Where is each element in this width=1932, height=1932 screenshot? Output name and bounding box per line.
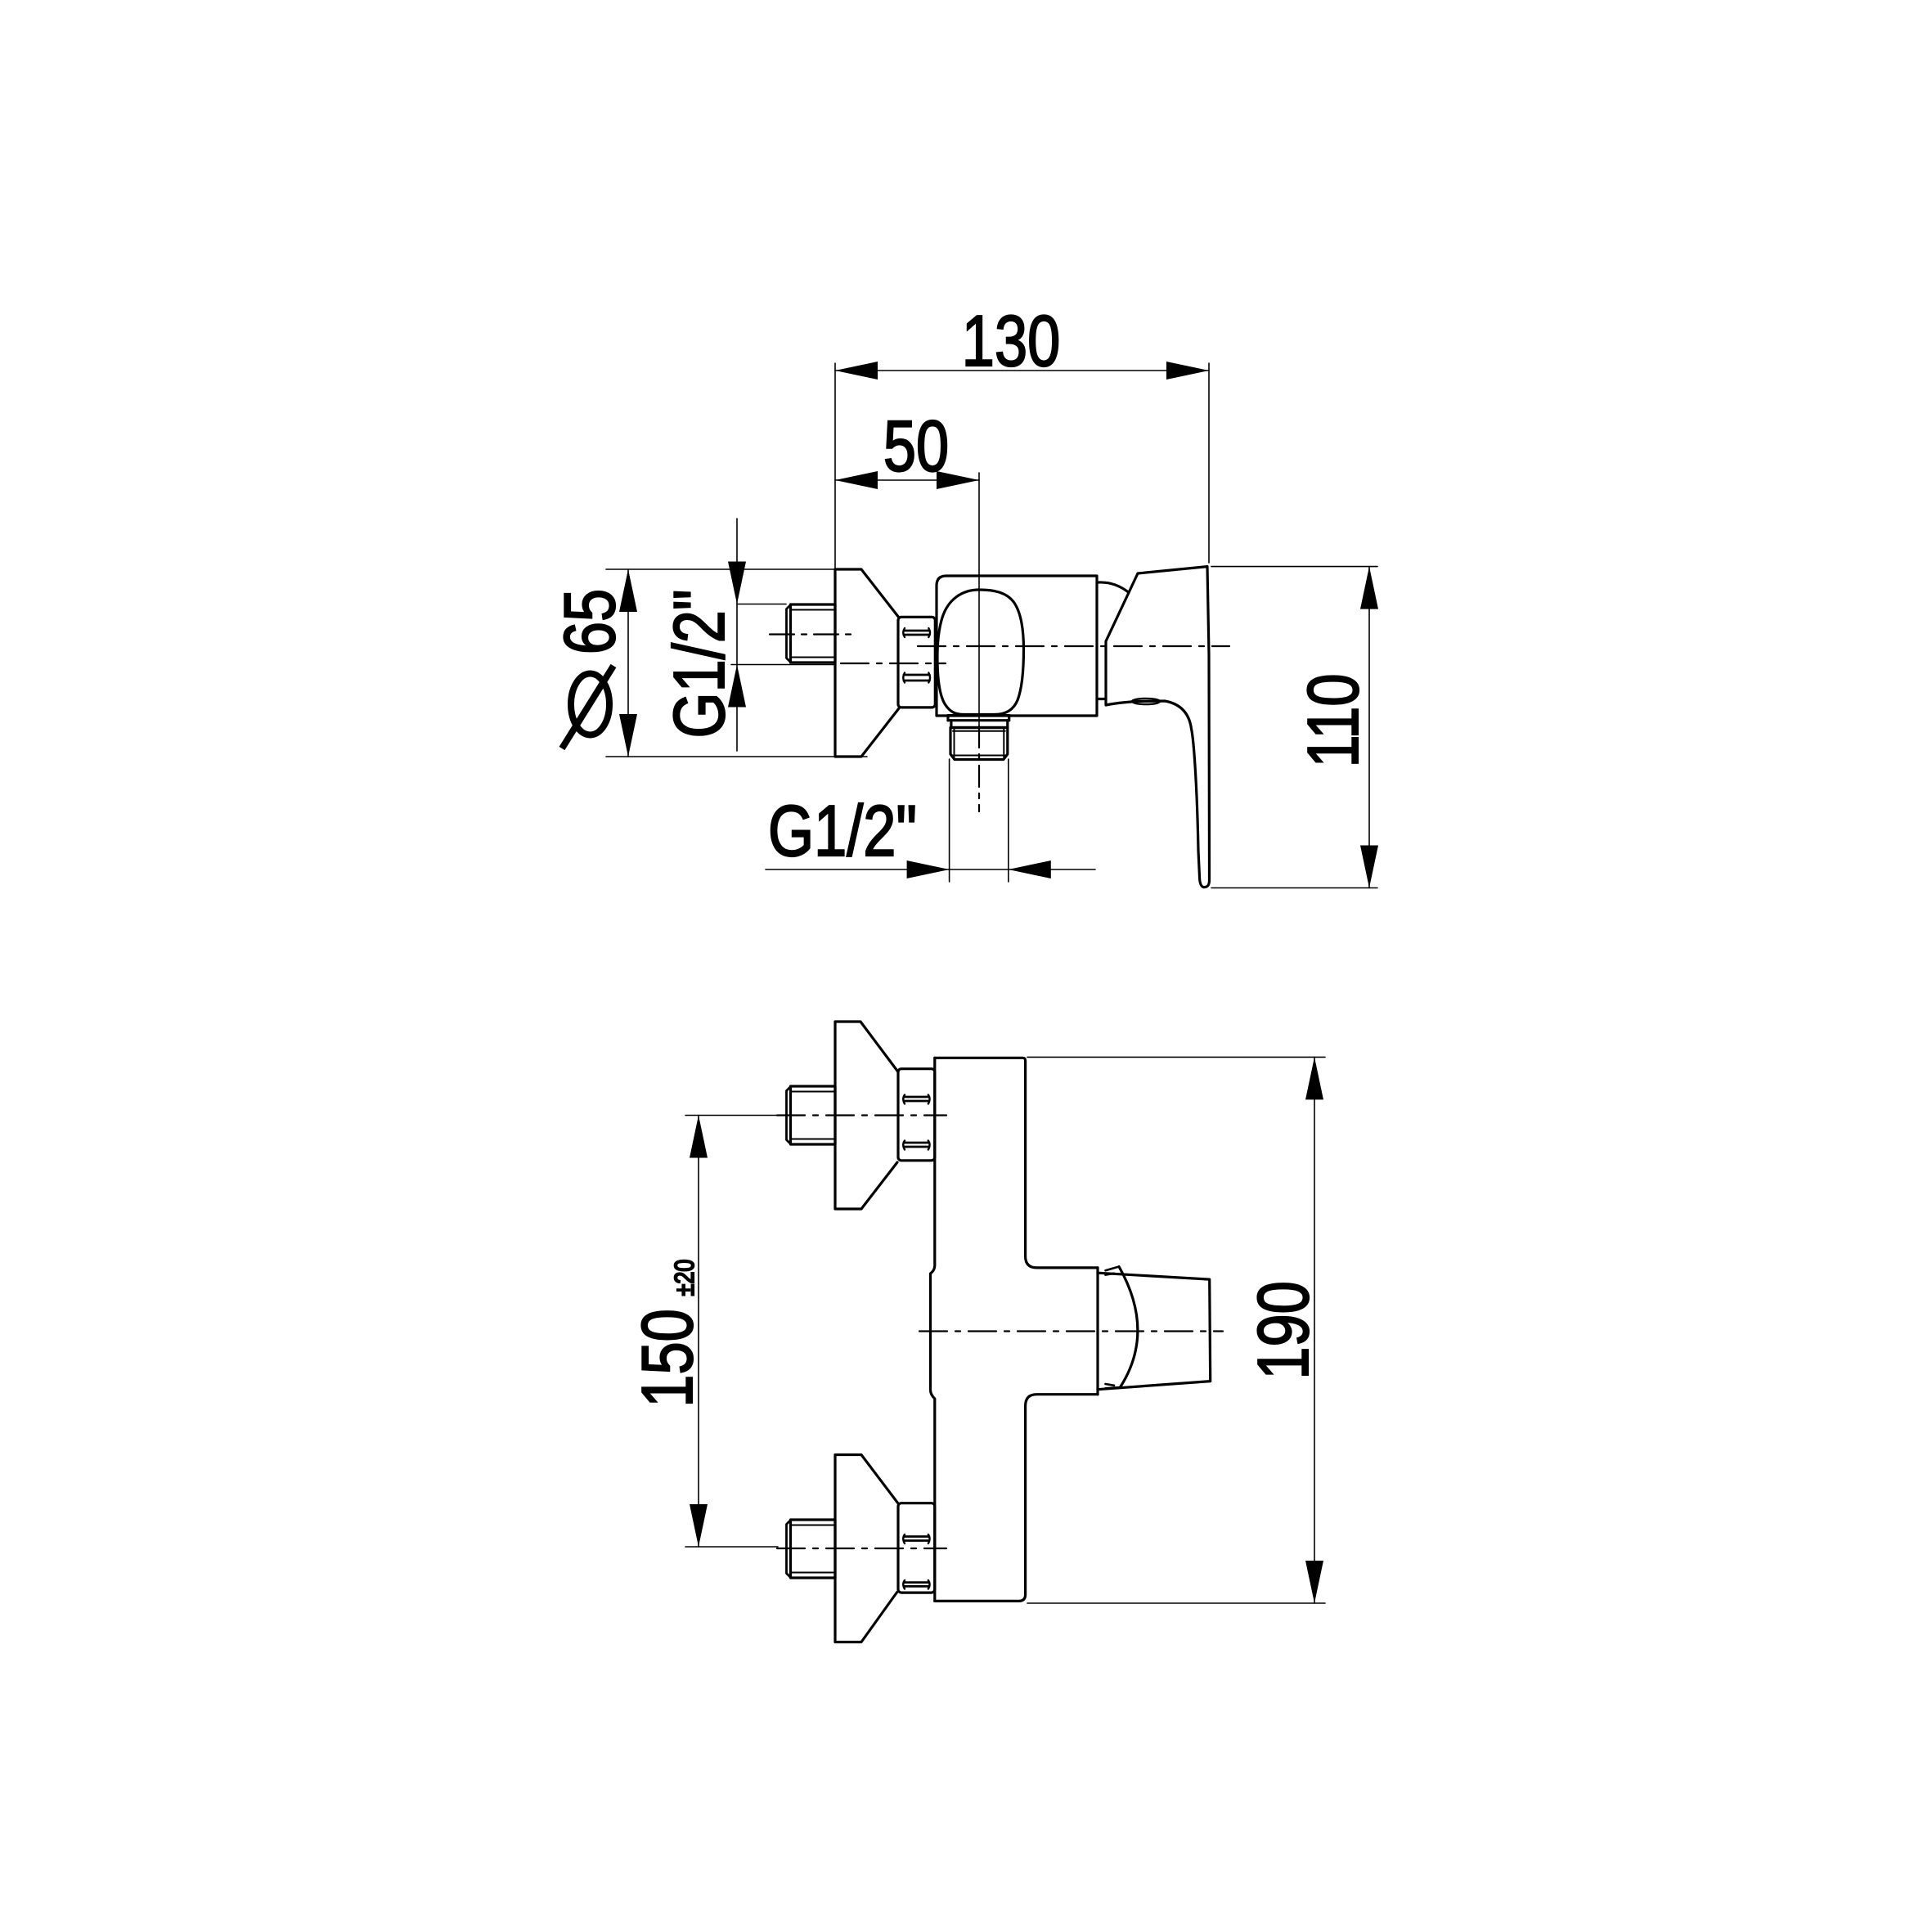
svg-text:±20: ±20 xyxy=(671,1260,700,1296)
svg-text:G1/2": G1/2" xyxy=(659,589,739,738)
svg-text:G1/2": G1/2" xyxy=(768,791,917,871)
svg-text:150: 150 xyxy=(627,1309,708,1407)
svg-text:130: 130 xyxy=(962,301,1060,381)
svg-text:190: 190 xyxy=(1243,1281,1323,1379)
svg-text:110: 110 xyxy=(1293,673,1373,767)
svg-text:65: 65 xyxy=(550,589,630,654)
svg-text:50: 50 xyxy=(883,407,949,487)
